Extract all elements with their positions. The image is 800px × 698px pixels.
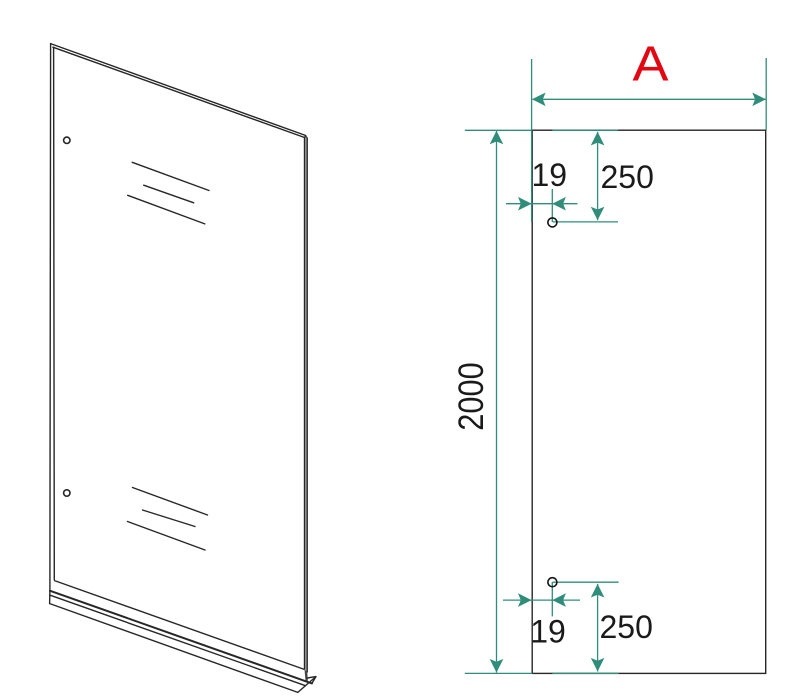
svg-text:2000: 2000: [452, 362, 491, 431]
svg-text:19: 19: [530, 613, 566, 649]
svg-text:250: 250: [600, 609, 653, 645]
svg-text:19: 19: [532, 157, 568, 193]
svg-text:A: A: [633, 37, 669, 92]
svg-text:250: 250: [601, 159, 654, 195]
